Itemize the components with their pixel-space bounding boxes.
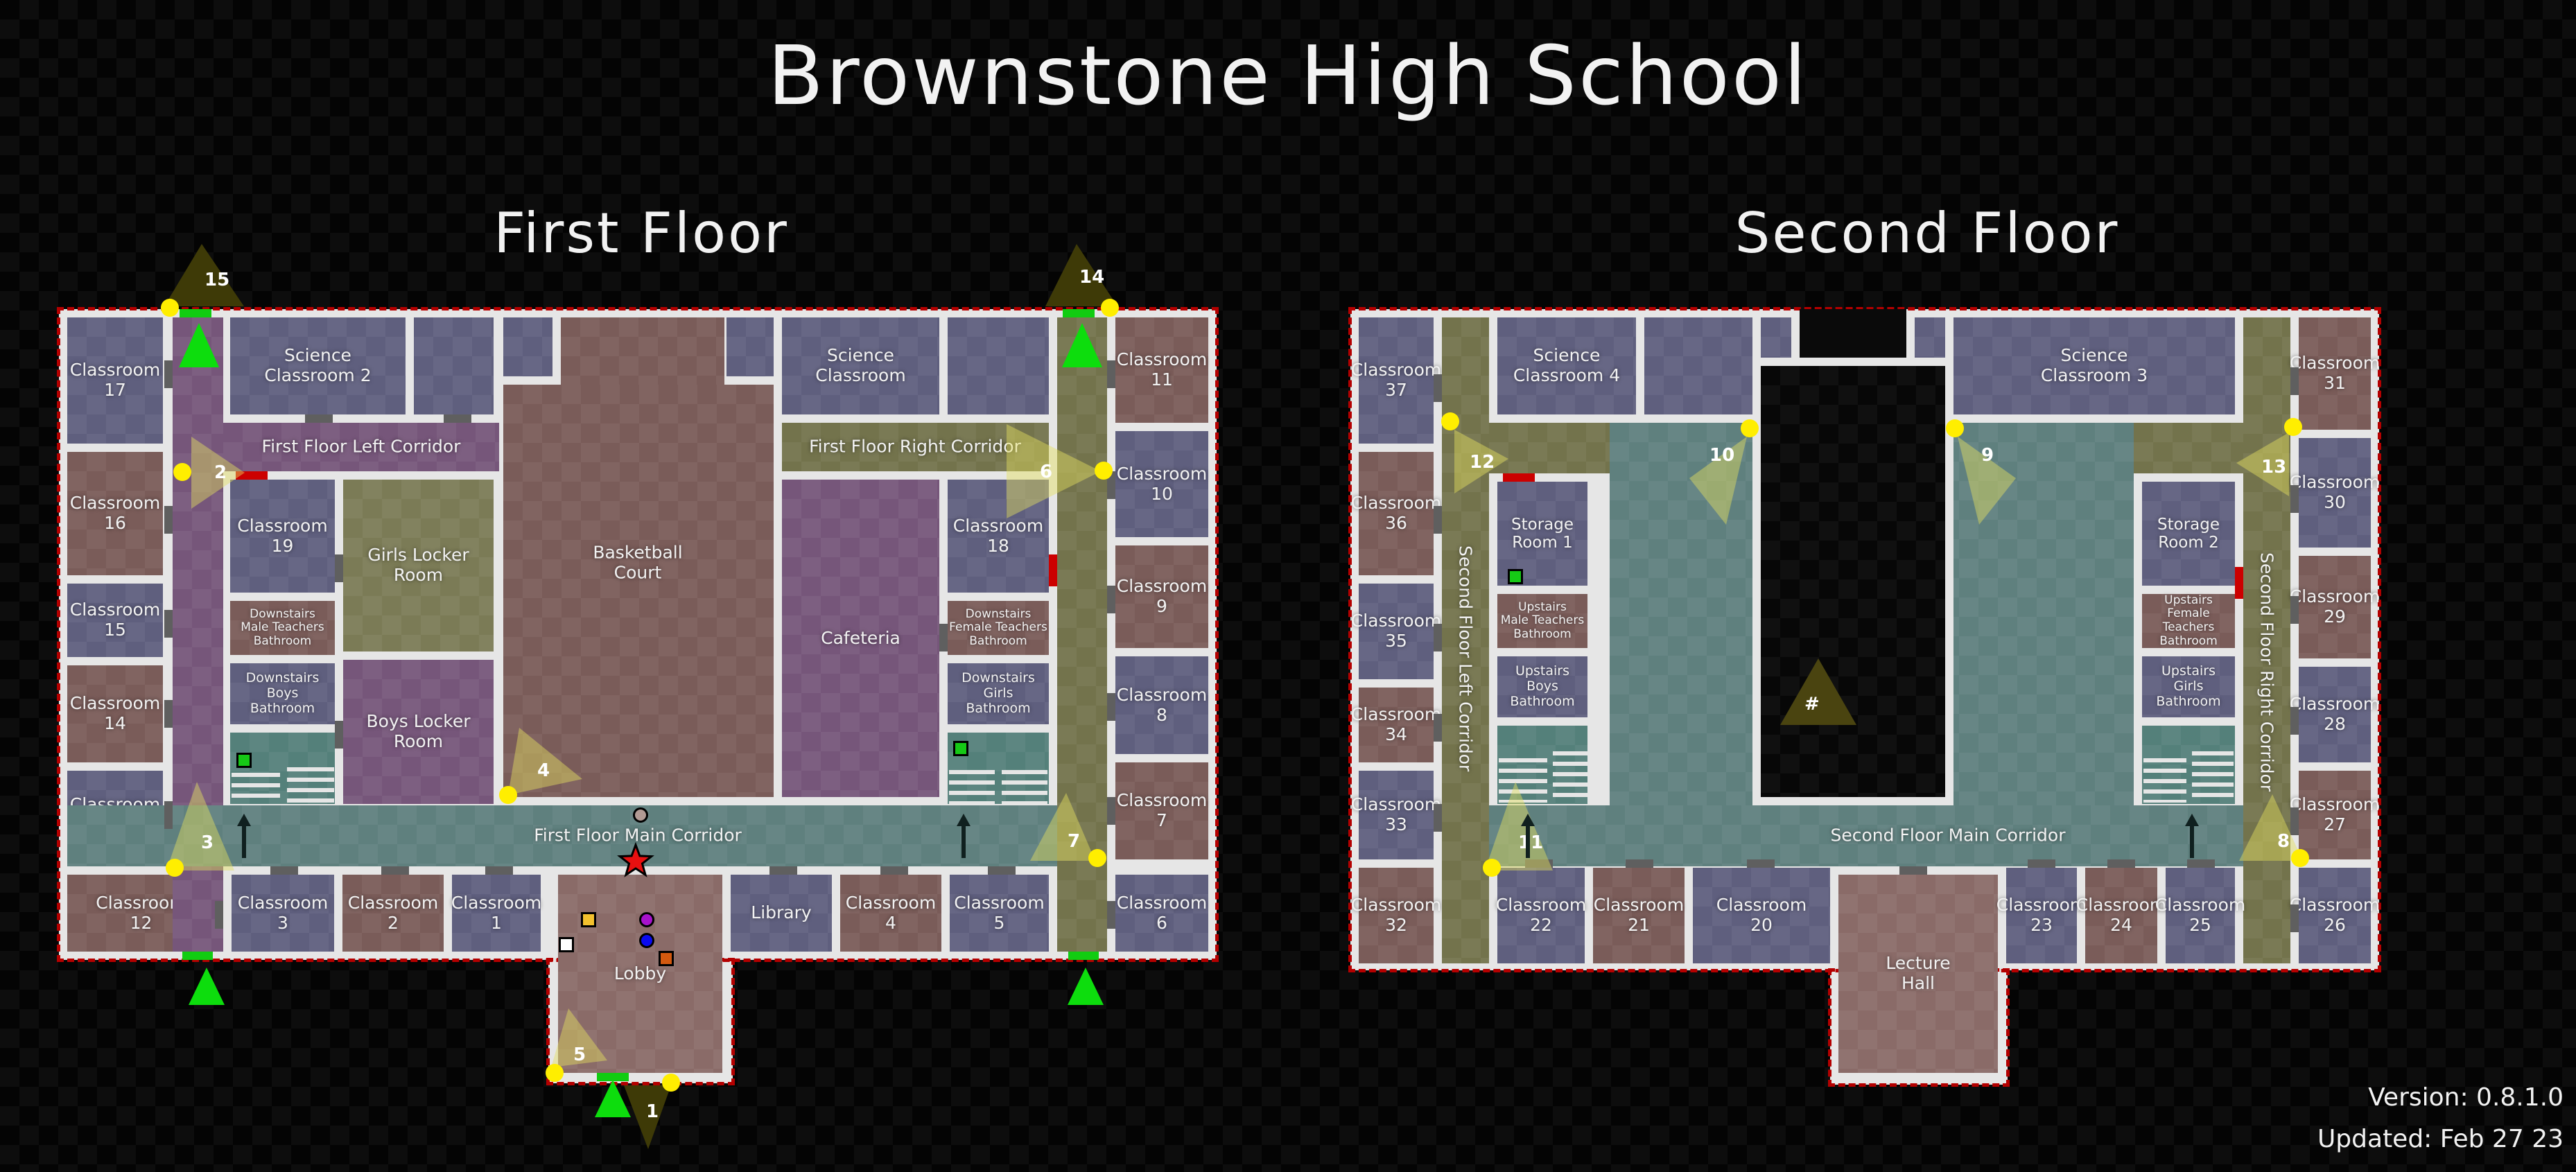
cctv-camera-icon-9 [1946,419,1964,437]
map-canvas: Brownstone High School First Floor Secon… [0,0,2576,1172]
camera-number-2: 2 [214,462,227,483]
exit-triangle-icon [189,968,225,1005]
camera-number-12: 12 [1470,452,1495,473]
legend-camera-cone-icon [1780,658,1856,725]
exit-triangle-icon [179,323,219,367]
stairs-arrow-head [2185,814,2199,826]
exit-triangle-icon [1062,323,1102,367]
cctv-camera-icon-2 [173,463,191,481]
camera-number-15: 15 [204,270,229,290]
camera-cone-6 [1007,424,1101,518]
camera-cone-8 [2239,794,2303,861]
camera-number-3: 3 [201,832,214,853]
cctv-camera-icon-8 [2291,849,2309,867]
cctv-camera-icon-4 [499,786,517,804]
markers-layer: 151426437511210913118# [0,0,2576,1172]
cctv-camera-icon-13 [2284,418,2302,436]
camera-number-7: 7 [1068,831,1080,852]
camera-number-9: 9 [1981,445,1994,466]
cctv-camera-icon-5 [546,1064,564,1082]
camera-number-14: 14 [1079,267,1104,288]
legend-camera-symbol: # [1804,694,1820,715]
camera-number-11: 11 [1518,832,1543,853]
camera-cone-3 [166,782,234,871]
camera-number-13: 13 [2261,457,2286,478]
exit-triangle-icon [1068,968,1104,1005]
cctv-camera-icon-15 [161,299,179,317]
camera-number-8: 8 [2277,831,2290,852]
cctv-camera-icon-12 [1441,412,1459,430]
camera-number-5: 5 [573,1044,586,1065]
cctv-camera-icon-10 [1741,419,1759,437]
cctv-camera-icon-14 [1101,299,1119,317]
camera-cone-7 [1030,793,1095,861]
summoning-circle-icon [620,845,652,875]
camera-number-6: 6 [1040,462,1052,482]
camera-cone-11 [1485,782,1553,871]
stairs-arrow-head [957,814,971,826]
cctv-camera-icon-1 [662,1074,680,1092]
camera-number-10: 10 [1709,445,1734,466]
cctv-camera-icon-6 [1095,462,1113,480]
cctv-camera-icon-7 [1088,849,1106,867]
cctv-camera-icon-3 [166,859,184,877]
camera-number-1: 1 [646,1101,659,1122]
stairs-arrow-head [237,814,251,826]
camera-number-4: 4 [537,760,550,781]
cctv-camera-icon-11 [1483,859,1501,877]
